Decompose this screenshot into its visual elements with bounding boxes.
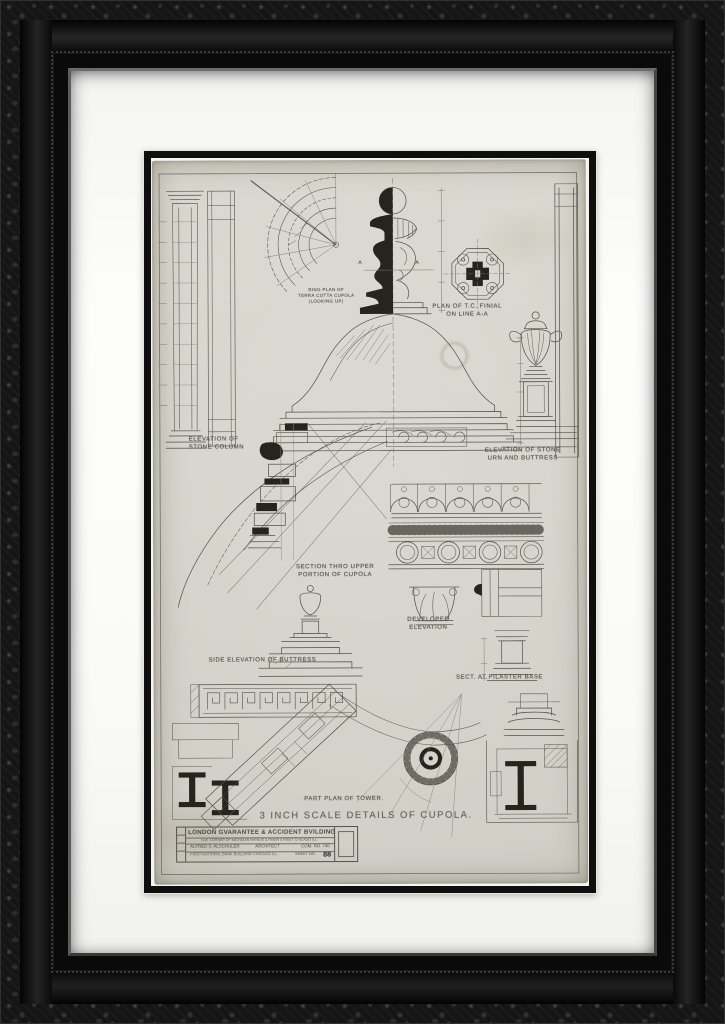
label-plan-finial: PLAN OF T.C. FINIAL ON LINE A-A (422, 304, 512, 320)
label-part-plan-tower: PART PLAN OF TOWER. (294, 796, 394, 804)
ring-plan-figure (251, 173, 339, 292)
architect-office: FIRST NATIONAL BANK BUILDING CHICAGO ILL… (190, 852, 278, 856)
finial-plan-figure (443, 239, 511, 309)
building-name: LONDON GVARANTEE & ACCIDENT BVILDING (188, 828, 335, 836)
label-developed-elevation: DEVELOPED ELEVATION (388, 617, 468, 633)
label-elevation-stone-urn: ELEVATION OF STONE URN AND BUTTRESS (479, 447, 567, 463)
pilaster-base-figure (481, 631, 537, 681)
architectural-drawing (152, 159, 589, 885)
title-block-revision-cell (334, 827, 357, 861)
frame-cove-top (20, 20, 705, 52)
label-sect-pilaster-base: SECT. AT PILASTER BASE (450, 674, 550, 682)
label-section-upper-cupola: SECTION THRO UPPER PORTION OF CUPOLA (295, 564, 375, 580)
title-block: LONDON GVARANTEE & ACCIDENT BVILDING N.W… (176, 826, 358, 863)
stone-column-figure (158, 191, 235, 448)
section-marker-a: A (412, 260, 422, 267)
architect-title: ARCHITECT (255, 844, 280, 848)
corner-pilaster-figure (555, 184, 579, 457)
drawing-paper: ELEVATION OF STONE COLUMN RING PLAN OF T… (152, 159, 589, 885)
column-base-steel-figure (486, 694, 577, 823)
label-ring-plan: RING PLAN OF TERRA COTTA CUPOLA (LOOKING… (297, 288, 355, 305)
section-marker-a: A (355, 260, 365, 267)
label-side-elevation-buttress: SIDE ELEVATION OF BUTTRESS (187, 657, 337, 665)
architect-name: ALFRED S. ALSCHULER (190, 844, 239, 849)
label-elevation-stone-column: ELEVATION OF STONE COLUMN (189, 436, 259, 452)
cupola-section-figure (177, 421, 392, 677)
sheet-number: 88 (323, 850, 331, 858)
title-block-left-cell (177, 828, 186, 862)
commission-number: COM. NO. 740 (301, 844, 330, 848)
sheet-label: SHEET NO. (295, 852, 316, 856)
black-fillet: ELEVATION OF STONE COLUMN RING PLAN OF T… (144, 151, 596, 893)
frame-cove-bottom (20, 972, 705, 1004)
buttress-frieze-figure (191, 684, 356, 717)
drawing-title: 3 INCH SCALE DETAILS OF CUPOLA. (256, 810, 476, 822)
frame-cove-right (673, 20, 705, 1004)
building-address: N.W. CORNER OF MICHIGAN AVENUE & RIVER S… (201, 838, 318, 842)
finial-figure (360, 178, 446, 466)
framed-architectural-print: ELEVATION OF STONE COLUMN RING PLAN OF T… (0, 0, 725, 1024)
stone-urn-figure (502, 312, 577, 447)
frame-cove-left (20, 20, 52, 1004)
